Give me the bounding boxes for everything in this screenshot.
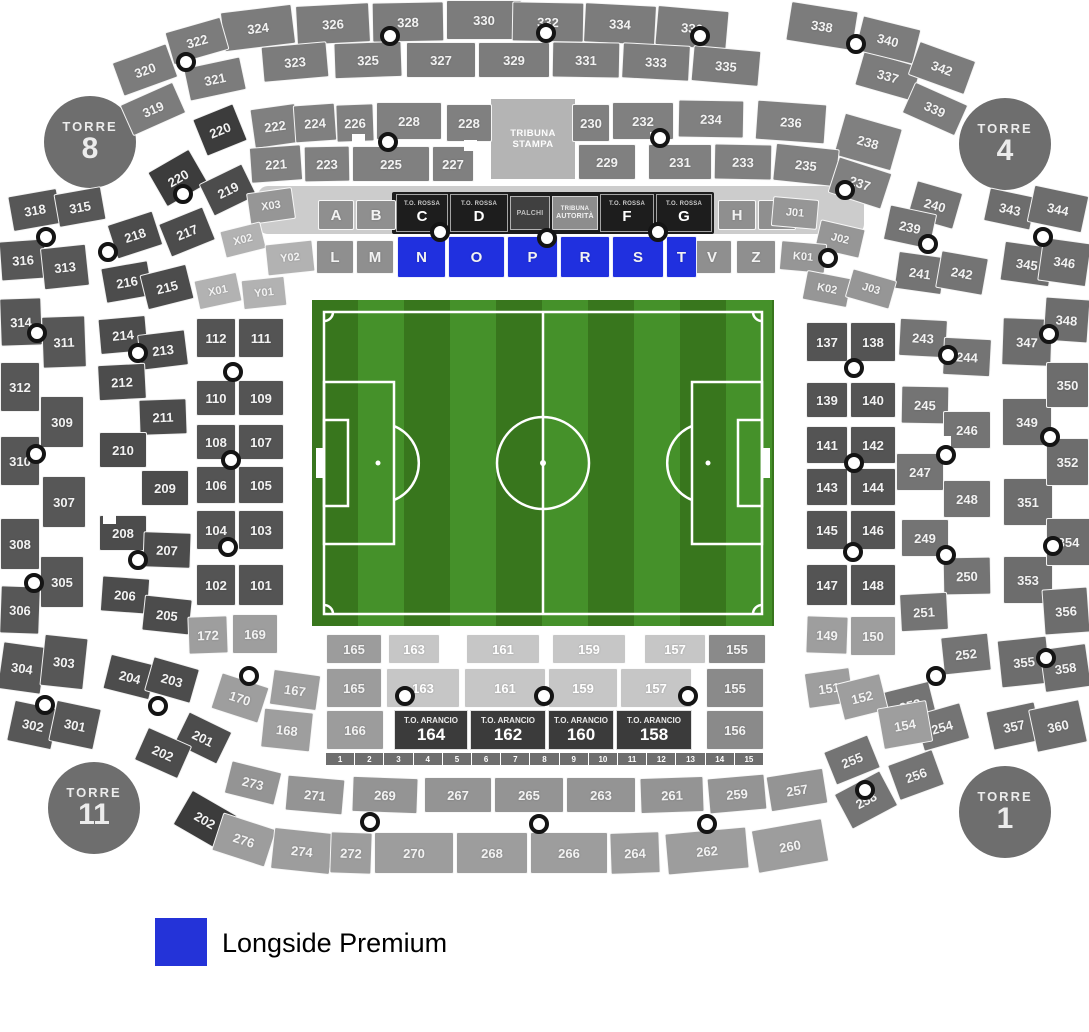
section-315[interactable]: 315: [53, 186, 106, 228]
section-326[interactable]: 326: [295, 2, 371, 46]
section-162[interactable]: T.O. ARANCIO162: [470, 710, 546, 750]
section-H[interactable]: H: [718, 200, 756, 230]
section-252[interactable]: 252: [940, 633, 992, 676]
gate-marker-icon: [844, 358, 864, 378]
section-159[interactable]: 159: [548, 668, 618, 708]
gate-marker-icon: [27, 323, 47, 343]
tribuna-stampa-box[interactable]: TRIBUNA STAMPA: [490, 98, 576, 180]
gate-marker-icon: [128, 343, 148, 363]
gate-number-cell: 15: [735, 752, 764, 766]
gate-marker-icon: [148, 696, 168, 716]
section-141[interactable]: 141: [806, 426, 848, 464]
section-164[interactable]: T.O. ARANCIO164: [394, 710, 468, 750]
section-330[interactable]: 330: [446, 0, 522, 40]
gate-marker-icon: [537, 228, 557, 248]
section-301[interactable]: 301: [48, 700, 102, 751]
section-207[interactable]: 207: [142, 531, 191, 569]
gate-marker-icon: [24, 573, 44, 593]
legend-swatch: [155, 918, 207, 966]
section-102[interactable]: 102: [196, 564, 236, 606]
section-256[interactable]: 256: [887, 749, 945, 801]
section-157[interactable]: 157: [644, 634, 706, 664]
gate-number-cell: 4: [414, 752, 443, 766]
section-205[interactable]: 205: [141, 595, 193, 636]
section-261[interactable]: 261: [639, 776, 704, 814]
section-307[interactable]: 307: [42, 476, 86, 528]
section-264[interactable]: 264: [609, 831, 660, 875]
gate-marker-icon: [176, 52, 196, 72]
gate-marker-icon: [697, 814, 717, 834]
gate-marker-icon: [855, 780, 875, 800]
gate-marker-icon: [534, 686, 554, 706]
section-139[interactable]: 139: [806, 382, 848, 418]
section-211[interactable]: 211: [138, 398, 187, 436]
section-X01[interactable]: X01: [193, 272, 242, 310]
section-230[interactable]: 230: [572, 104, 610, 142]
section-331[interactable]: 331: [552, 41, 621, 78]
section-313[interactable]: 313: [40, 244, 90, 291]
section-158[interactable]: T.O. ARANCIO158: [616, 710, 692, 750]
section-236[interactable]: 236: [755, 100, 828, 145]
section-112[interactable]: 112: [196, 318, 236, 358]
section-107[interactable]: 107: [238, 424, 284, 460]
section-356[interactable]: 356: [1041, 586, 1089, 635]
gate-number-cell: 11: [618, 752, 647, 766]
section-344[interactable]: 344: [1027, 185, 1089, 234]
section-159[interactable]: 159: [552, 634, 626, 664]
section-227[interactable]: 227: [432, 146, 474, 182]
section-212[interactable]: 212: [97, 363, 147, 401]
gate-marker-icon: [650, 128, 670, 148]
section-R[interactable]: R: [560, 236, 610, 278]
gate-marker-icon: [35, 695, 55, 715]
section-O[interactable]: O: [448, 236, 505, 278]
section-350[interactable]: 350: [1046, 362, 1089, 408]
section-327[interactable]: 327: [406, 42, 476, 78]
gate-marker-icon: [98, 242, 118, 262]
gate-marker-icon: [1040, 427, 1060, 447]
gate-marker-icon: [529, 814, 549, 834]
section-267[interactable]: 267: [424, 777, 492, 813]
section-322[interactable]: 322: [164, 17, 229, 66]
section-165[interactable]: 165: [326, 668, 382, 708]
gate-number-cell: 6: [472, 752, 501, 766]
gate-number-cell: 10: [589, 752, 618, 766]
section-144[interactable]: 144: [850, 468, 896, 506]
section-248[interactable]: 248: [943, 480, 991, 518]
section-273[interactable]: 273: [224, 760, 283, 806]
gate-marker-icon: [380, 26, 400, 46]
section-155[interactable]: 155: [708, 634, 766, 664]
section-L[interactable]: L: [316, 240, 354, 274]
section-235[interactable]: 235: [772, 143, 840, 187]
section-305[interactable]: 305: [40, 556, 84, 608]
gate-number-cell: 2: [355, 752, 384, 766]
section-T[interactable]: T: [666, 236, 697, 278]
gate-marker-icon: [430, 222, 450, 242]
gate-marker-icon: [690, 26, 710, 46]
section-103[interactable]: 103: [238, 510, 284, 550]
section-334[interactable]: 334: [583, 2, 657, 46]
section-272[interactable]: 272: [329, 831, 372, 874]
section-X02[interactable]: X02: [219, 221, 267, 258]
section-220[interactable]: 220: [192, 103, 248, 157]
section-217[interactable]: 217: [158, 206, 216, 257]
section-312[interactable]: 312: [0, 362, 40, 412]
section-221[interactable]: 221: [249, 144, 303, 184]
tower-torre-11: TORRE 11: [48, 762, 140, 854]
gate-number-cell: 14: [706, 752, 735, 766]
section-335[interactable]: 335: [691, 45, 762, 87]
section-266[interactable]: 266: [530, 832, 608, 874]
section-229[interactable]: 229: [578, 144, 636, 180]
section-209[interactable]: 209: [141, 470, 189, 506]
gate-marker-icon: [1033, 227, 1053, 247]
gate-marker-icon: [1036, 648, 1056, 668]
legend-label: Longside Premium: [222, 928, 447, 959]
section-145[interactable]: 145: [806, 510, 848, 550]
gate-marker-icon: [1039, 324, 1059, 344]
tribuna-stampa-line1: TRIBUNA: [510, 128, 556, 139]
section-J03[interactable]: J03: [845, 268, 897, 310]
gate-marker-icon: [26, 444, 46, 464]
section-323[interactable]: 323: [261, 41, 330, 83]
section-160[interactable]: T.O. ARANCIO160: [548, 710, 614, 750]
section-105[interactable]: 105: [238, 466, 284, 504]
vomitory-notch: [464, 140, 477, 151]
vomitory-notch: [103, 513, 116, 524]
section-360[interactable]: 360: [1028, 699, 1088, 753]
section-265[interactable]: 265: [494, 777, 564, 813]
tower-torre-1: TORRE 1: [959, 766, 1051, 858]
gate-marker-icon: [360, 812, 380, 832]
gate-number-cell: 3: [384, 752, 413, 766]
section-325[interactable]: 325: [333, 41, 402, 79]
section-257[interactable]: 257: [766, 768, 829, 813]
pitch: [312, 300, 774, 626]
section-156[interactable]: 156: [706, 710, 764, 750]
section-251[interactable]: 251: [899, 592, 949, 632]
section-149[interactable]: 149: [805, 615, 848, 654]
section-109[interactable]: 109: [238, 380, 284, 416]
gate-marker-icon: [846, 34, 866, 54]
gate-marker-icon: [223, 362, 243, 382]
section-169[interactable]: 169: [232, 614, 278, 654]
gate-marker-icon: [173, 184, 193, 204]
section-110[interactable]: 110: [196, 380, 236, 416]
stadium-seat-map: TRIBUNA STAMPA TORRE 8 TORRE 4 TORRE 11 …: [0, 0, 1089, 1032]
section-101[interactable]: 101: [238, 564, 284, 606]
section-111[interactable]: 111: [238, 318, 284, 358]
section-303[interactable]: 303: [39, 634, 88, 690]
section-242[interactable]: 242: [935, 250, 989, 296]
section-234[interactable]: 234: [678, 99, 745, 138]
gate-number-cell: 9: [560, 752, 589, 766]
gate-marker-icon: [818, 248, 838, 268]
gate-number-cell: 7: [501, 752, 530, 766]
section-150[interactable]: 150: [850, 616, 896, 656]
section-K02[interactable]: K02: [802, 270, 853, 308]
section-Y02[interactable]: Y02: [264, 240, 315, 277]
gate-marker-icon: [843, 542, 863, 562]
vomitory-notch: [938, 300, 951, 311]
gate-marker-icon: [678, 686, 698, 706]
section-J01[interactable]: J01: [771, 196, 819, 230]
section-D[interactable]: T.O. ROSSAD: [450, 194, 508, 232]
tower-torre-4: TORRE 4: [959, 98, 1051, 190]
section-270[interactable]: 270: [374, 832, 454, 874]
gate-marker-icon: [378, 132, 398, 152]
section-224[interactable]: 224: [293, 103, 338, 144]
section-161[interactable]: 161: [464, 668, 546, 708]
gate-marker-icon: [648, 222, 668, 242]
section-138[interactable]: 138: [850, 322, 896, 362]
section-268[interactable]: 268: [456, 832, 528, 874]
vomitory-notch: [352, 134, 365, 145]
gate-marker-icon: [395, 686, 415, 706]
section-274[interactable]: 274: [270, 827, 334, 875]
section-167[interactable]: 167: [269, 669, 322, 711]
section-B[interactable]: B: [356, 200, 396, 230]
gate-marker-icon: [218, 537, 238, 557]
section-210[interactable]: 210: [99, 432, 147, 468]
gate-number-cell: 13: [676, 752, 705, 766]
section-M[interactable]: M: [356, 240, 394, 274]
section-V[interactable]: V: [692, 240, 732, 274]
section-329[interactable]: 329: [478, 42, 550, 78]
section-271[interactable]: 271: [285, 775, 346, 816]
gate-marker-icon: [835, 180, 855, 200]
section-161[interactable]: 161: [466, 634, 540, 664]
gate-marker-icon: [844, 453, 864, 473]
gate-number-strip: 123456789101112131415: [326, 752, 764, 766]
section-148[interactable]: 148: [850, 564, 896, 606]
section-143[interactable]: 143: [806, 468, 848, 506]
section-311[interactable]: 311: [41, 315, 87, 369]
section-276[interactable]: 276: [211, 812, 277, 867]
gate-marker-icon: [36, 227, 56, 247]
gate-marker-icon: [926, 666, 946, 686]
section-165[interactable]: 165: [326, 634, 382, 664]
section-S[interactable]: S: [612, 236, 664, 278]
gate-marker-icon: [128, 550, 148, 570]
section-231[interactable]: 231: [648, 144, 712, 180]
section-X03[interactable]: X03: [246, 187, 296, 225]
section-AUTORITÀ[interactable]: TRIBUNAAUTORITÀ: [552, 196, 598, 230]
gate-marker-icon: [221, 450, 241, 470]
section-233[interactable]: 233: [714, 143, 773, 180]
gate-number-cell: 8: [530, 752, 559, 766]
gate-number-cell: 5: [443, 752, 472, 766]
section-333[interactable]: 333: [621, 42, 691, 82]
section-163[interactable]: 163: [388, 634, 440, 664]
gate-marker-icon: [1043, 536, 1063, 556]
section-228[interactable]: 228: [446, 104, 492, 142]
section-308[interactable]: 308: [0, 518, 40, 570]
tribuna-stampa-line2: STAMPA: [512, 139, 553, 150]
section-106[interactable]: 106: [196, 466, 236, 504]
section-154[interactable]: 154: [877, 700, 934, 750]
section-140[interactable]: 140: [850, 382, 896, 418]
section-309[interactable]: 309: [40, 396, 84, 448]
gate-marker-icon: [938, 345, 958, 365]
section-Z[interactable]: Z: [736, 240, 776, 274]
gate-number-cell: 12: [647, 752, 676, 766]
section-A[interactable]: A: [318, 200, 354, 230]
section-304[interactable]: 304: [0, 641, 47, 695]
section-269[interactable]: 269: [351, 776, 418, 814]
gate-marker-icon: [936, 545, 956, 565]
gate-marker-icon: [936, 445, 956, 465]
section-263[interactable]: 263: [566, 777, 636, 813]
gate-marker-icon: [239, 666, 259, 686]
gate-marker-icon: [536, 23, 556, 43]
section-F[interactable]: T.O. ROSSAF: [600, 194, 654, 232]
section-168[interactable]: 168: [260, 707, 314, 752]
section-PALCHI[interactable]: PALCHI: [510, 196, 550, 230]
section-Y01[interactable]: Y01: [241, 276, 288, 310]
section-223[interactable]: 223: [304, 146, 351, 183]
section-166[interactable]: 166: [326, 710, 384, 750]
section-260[interactable]: 260: [751, 818, 830, 874]
section-147[interactable]: 147: [806, 564, 848, 606]
section-172[interactable]: 172: [187, 615, 228, 654]
gate-number-cell: 1: [326, 752, 355, 766]
section-259[interactable]: 259: [707, 774, 768, 815]
section-155[interactable]: 155: [706, 668, 764, 708]
section-N[interactable]: N: [397, 236, 446, 278]
section-137[interactable]: 137: [806, 322, 848, 362]
gate-marker-icon: [918, 234, 938, 254]
